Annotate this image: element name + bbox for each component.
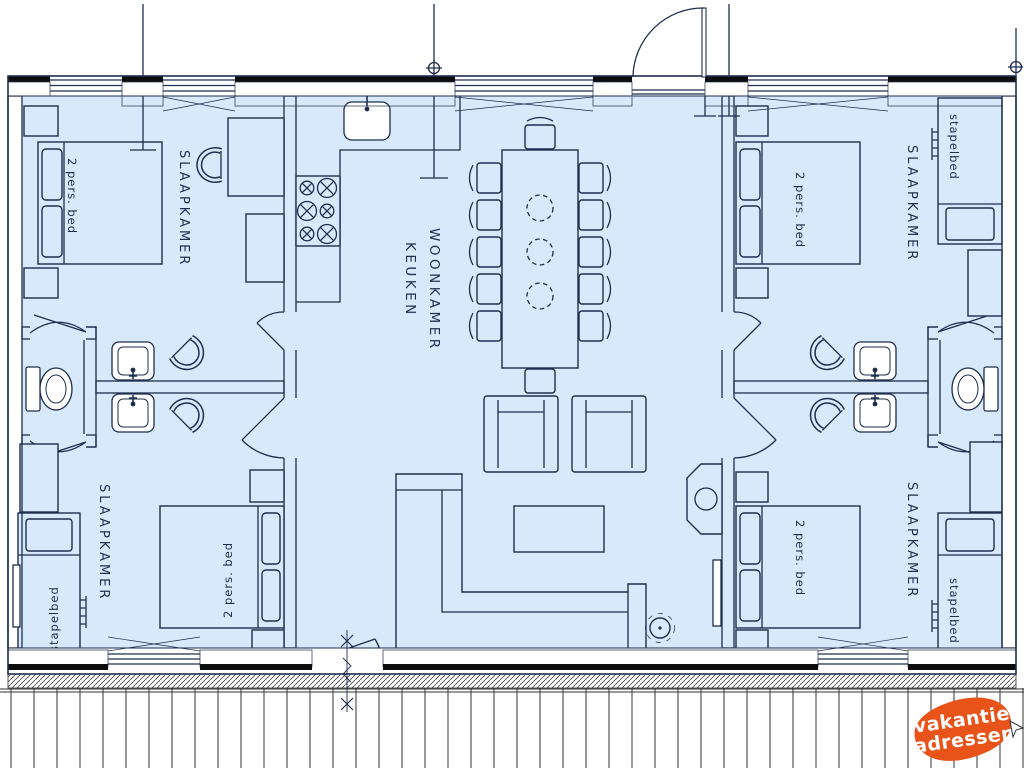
radiator	[713, 560, 721, 626]
desk	[228, 118, 284, 196]
floorplan-drawing: SLAAPKAMER 2 pers. bed SLAAPKAMER 2 pers…	[0, 0, 1024, 768]
room-label-bedroom: SLAAPKAMER	[176, 150, 191, 267]
toilet-bowl	[952, 368, 984, 410]
bed-label: 2 pers. bed	[65, 158, 79, 234]
washbasin	[112, 342, 154, 380]
survey-point	[1008, 59, 1023, 75]
room-wc-left	[26, 367, 72, 411]
nightstand	[736, 268, 768, 298]
entrance-door-swing	[633, 8, 704, 77]
bunkbed-label: stapelbed	[47, 586, 61, 652]
toilet-bowl	[40, 368, 72, 410]
nightstand	[24, 268, 58, 298]
bunk-bed	[932, 98, 1002, 244]
room-label-bedroom: SLAAPKAMER	[96, 484, 111, 601]
armchair	[484, 396, 558, 472]
dresser	[246, 214, 284, 282]
side-table	[646, 614, 675, 643]
wood-stove	[687, 464, 722, 534]
toilet-tank	[984, 367, 998, 411]
terrace-edge-band	[8, 674, 1016, 688]
dining-table	[502, 150, 578, 368]
room-label-livingroom: WOONKAMER	[426, 228, 442, 352]
bed-label: 2 pers. bed	[221, 542, 235, 618]
washbasin	[854, 394, 896, 432]
wardrobe	[970, 442, 1002, 512]
floorplan-page: SLAAPKAMER 2 pers. bed SLAAPKAMER 2 pers…	[0, 0, 1024, 768]
toilet-tank	[26, 367, 40, 411]
room-label-bedroom: SLAAPKAMER	[904, 145, 919, 262]
nightstand	[736, 472, 768, 502]
armchair	[572, 396, 646, 472]
room-label-kitchen: KEUKEN	[402, 242, 418, 318]
entrance-door-leaf	[702, 8, 706, 77]
room-wc-right	[952, 367, 998, 411]
coffee-table	[514, 506, 604, 552]
washbasin	[112, 394, 154, 432]
terrace-planks	[0, 688, 1024, 768]
nightstand	[24, 106, 58, 136]
bed-label: 2 pers. bed	[793, 172, 807, 248]
bed-label: 2 pers. bed	[793, 520, 807, 596]
bunkbed-label: stapelbed	[947, 114, 961, 180]
terrace-deck	[0, 674, 1024, 768]
nightstand	[250, 470, 284, 502]
bunk-bed	[932, 513, 1002, 658]
entrance-door	[633, 8, 706, 77]
stove	[296, 176, 340, 246]
bunkbed-label: stapelbed	[947, 578, 961, 644]
wardrobe	[20, 444, 58, 512]
survey-point	[426, 60, 442, 76]
radiator	[13, 565, 20, 627]
double-bed	[38, 142, 162, 264]
room-label-bedroom: SLAAPKAMER	[904, 482, 919, 599]
dresser	[968, 250, 1002, 316]
washbasin	[854, 342, 896, 380]
